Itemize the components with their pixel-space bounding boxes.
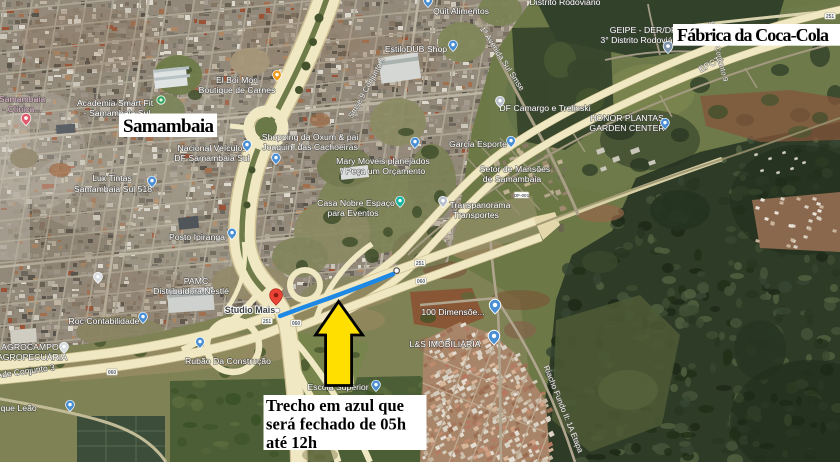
svg-text:Transpanorama: Transpanorama bbox=[449, 200, 510, 210]
svg-text:GEIPE - DER/DF: GEIPE - DER/DF bbox=[610, 25, 677, 35]
svg-text:DF Camargo e Trelinski: DF Camargo e Trelinski bbox=[499, 103, 590, 113]
svg-text:Roc Contabilidade: Roc Contabilidade bbox=[69, 316, 140, 326]
svg-text:Distribuidora Nestlé: Distribuidora Nestlé bbox=[153, 286, 229, 296]
svg-text:Boutique de Carnes: Boutique de Carnes bbox=[199, 85, 276, 95]
svg-text:Posto Ipiranga: Posto Ipiranga bbox=[169, 232, 225, 242]
svg-text:AGROCAMPO: AGROCAMPO bbox=[1, 342, 59, 352]
svg-text:EstiloDUB Shop: EstiloDUB Shop bbox=[385, 44, 447, 54]
svg-text:El Boi Mon: El Boi Mon bbox=[216, 75, 258, 85]
svg-text:Nacional Veículos: Nacional Veículos bbox=[177, 143, 247, 153]
svg-text:251: 251 bbox=[826, 14, 835, 20]
svg-text:Casa Nobre Espaço: Casa Nobre Espaço bbox=[317, 198, 395, 208]
svg-text:251: 251 bbox=[263, 319, 272, 325]
svg-text:Samambaia: Samambaia bbox=[0, 94, 45, 104]
svg-text:- Clínica...: - Clínica... bbox=[2, 104, 41, 114]
svg-text:DF Samambaia Sul: DF Samambaia Sul bbox=[174, 153, 249, 163]
svg-text:AGROPECUÁRIA: AGROPECUÁRIA bbox=[0, 352, 67, 362]
svg-text:GARDEN CENTER: GARDEN CENTER bbox=[589, 123, 664, 133]
svg-text:Quit Alimentos: Quit Alimentos bbox=[433, 6, 490, 16]
svg-text:Academia Smart Fit: Academia Smart Fit bbox=[77, 98, 154, 108]
svg-text:L&S IMOBILIÁRIA: L&S IMOBILIÁRIA bbox=[410, 339, 481, 349]
svg-text:Trecho em azul que: Trecho em azul que bbox=[266, 396, 404, 415]
svg-text:251: 251 bbox=[416, 261, 425, 267]
svg-text:Studio Mais: Studio Mais bbox=[225, 305, 276, 315]
svg-text:Samambaia: Samambaia bbox=[123, 116, 215, 137]
svg-text:PAMC: PAMC bbox=[184, 276, 208, 286]
svg-text:DF-001: DF-001 bbox=[514, 193, 530, 198]
svg-text:Distrito Rodoviário: Distrito Rodoviário bbox=[530, 0, 601, 7]
svg-text:para Eventos: para Eventos bbox=[327, 208, 379, 218]
svg-text:será fechado de 05h: será fechado de 05h bbox=[266, 415, 406, 434]
svg-text:060: 060 bbox=[108, 370, 117, 376]
svg-text:Setor de Mansões: Setor de Mansões bbox=[480, 164, 551, 174]
svg-text:100 Dimensõe...: 100 Dimensõe... bbox=[421, 307, 484, 317]
svg-text:/ Peça um Orçamento: / Peça um Orçamento bbox=[341, 166, 426, 176]
svg-text:Shopping da Oxum & pai: Shopping da Oxum & pai bbox=[262, 132, 359, 142]
svg-text:Transportes: Transportes bbox=[453, 210, 500, 220]
svg-text:Lux Tintas: Lux Tintas bbox=[92, 173, 132, 183]
svg-text:Joaquim das Cachoeiras: Joaquim das Cachoeiras bbox=[262, 142, 358, 152]
svg-text:Mary Moveis planejados: Mary Moveis planejados bbox=[336, 156, 430, 166]
svg-text:de Samambaia: de Samambaia bbox=[483, 174, 542, 184]
svg-text:HONOR PLANTAS: HONOR PLANTAS bbox=[590, 113, 664, 123]
svg-text:Fábrica da Coca-Cola: Fábrica da Coca-Cola bbox=[677, 25, 829, 45]
svg-text:Samambaia Sul 518: Samambaia Sul 518 bbox=[74, 184, 152, 194]
svg-text:Garcia Esporte: Garcia Esporte bbox=[449, 139, 507, 149]
svg-text:060: 060 bbox=[417, 279, 426, 285]
svg-text:...que Leão: ...que Leão bbox=[0, 403, 37, 413]
svg-text:060: 060 bbox=[292, 321, 301, 327]
svg-text:Rubão Da Construção: Rubão Da Construção bbox=[185, 356, 271, 366]
svg-text:até 12h: até 12h bbox=[266, 433, 317, 452]
